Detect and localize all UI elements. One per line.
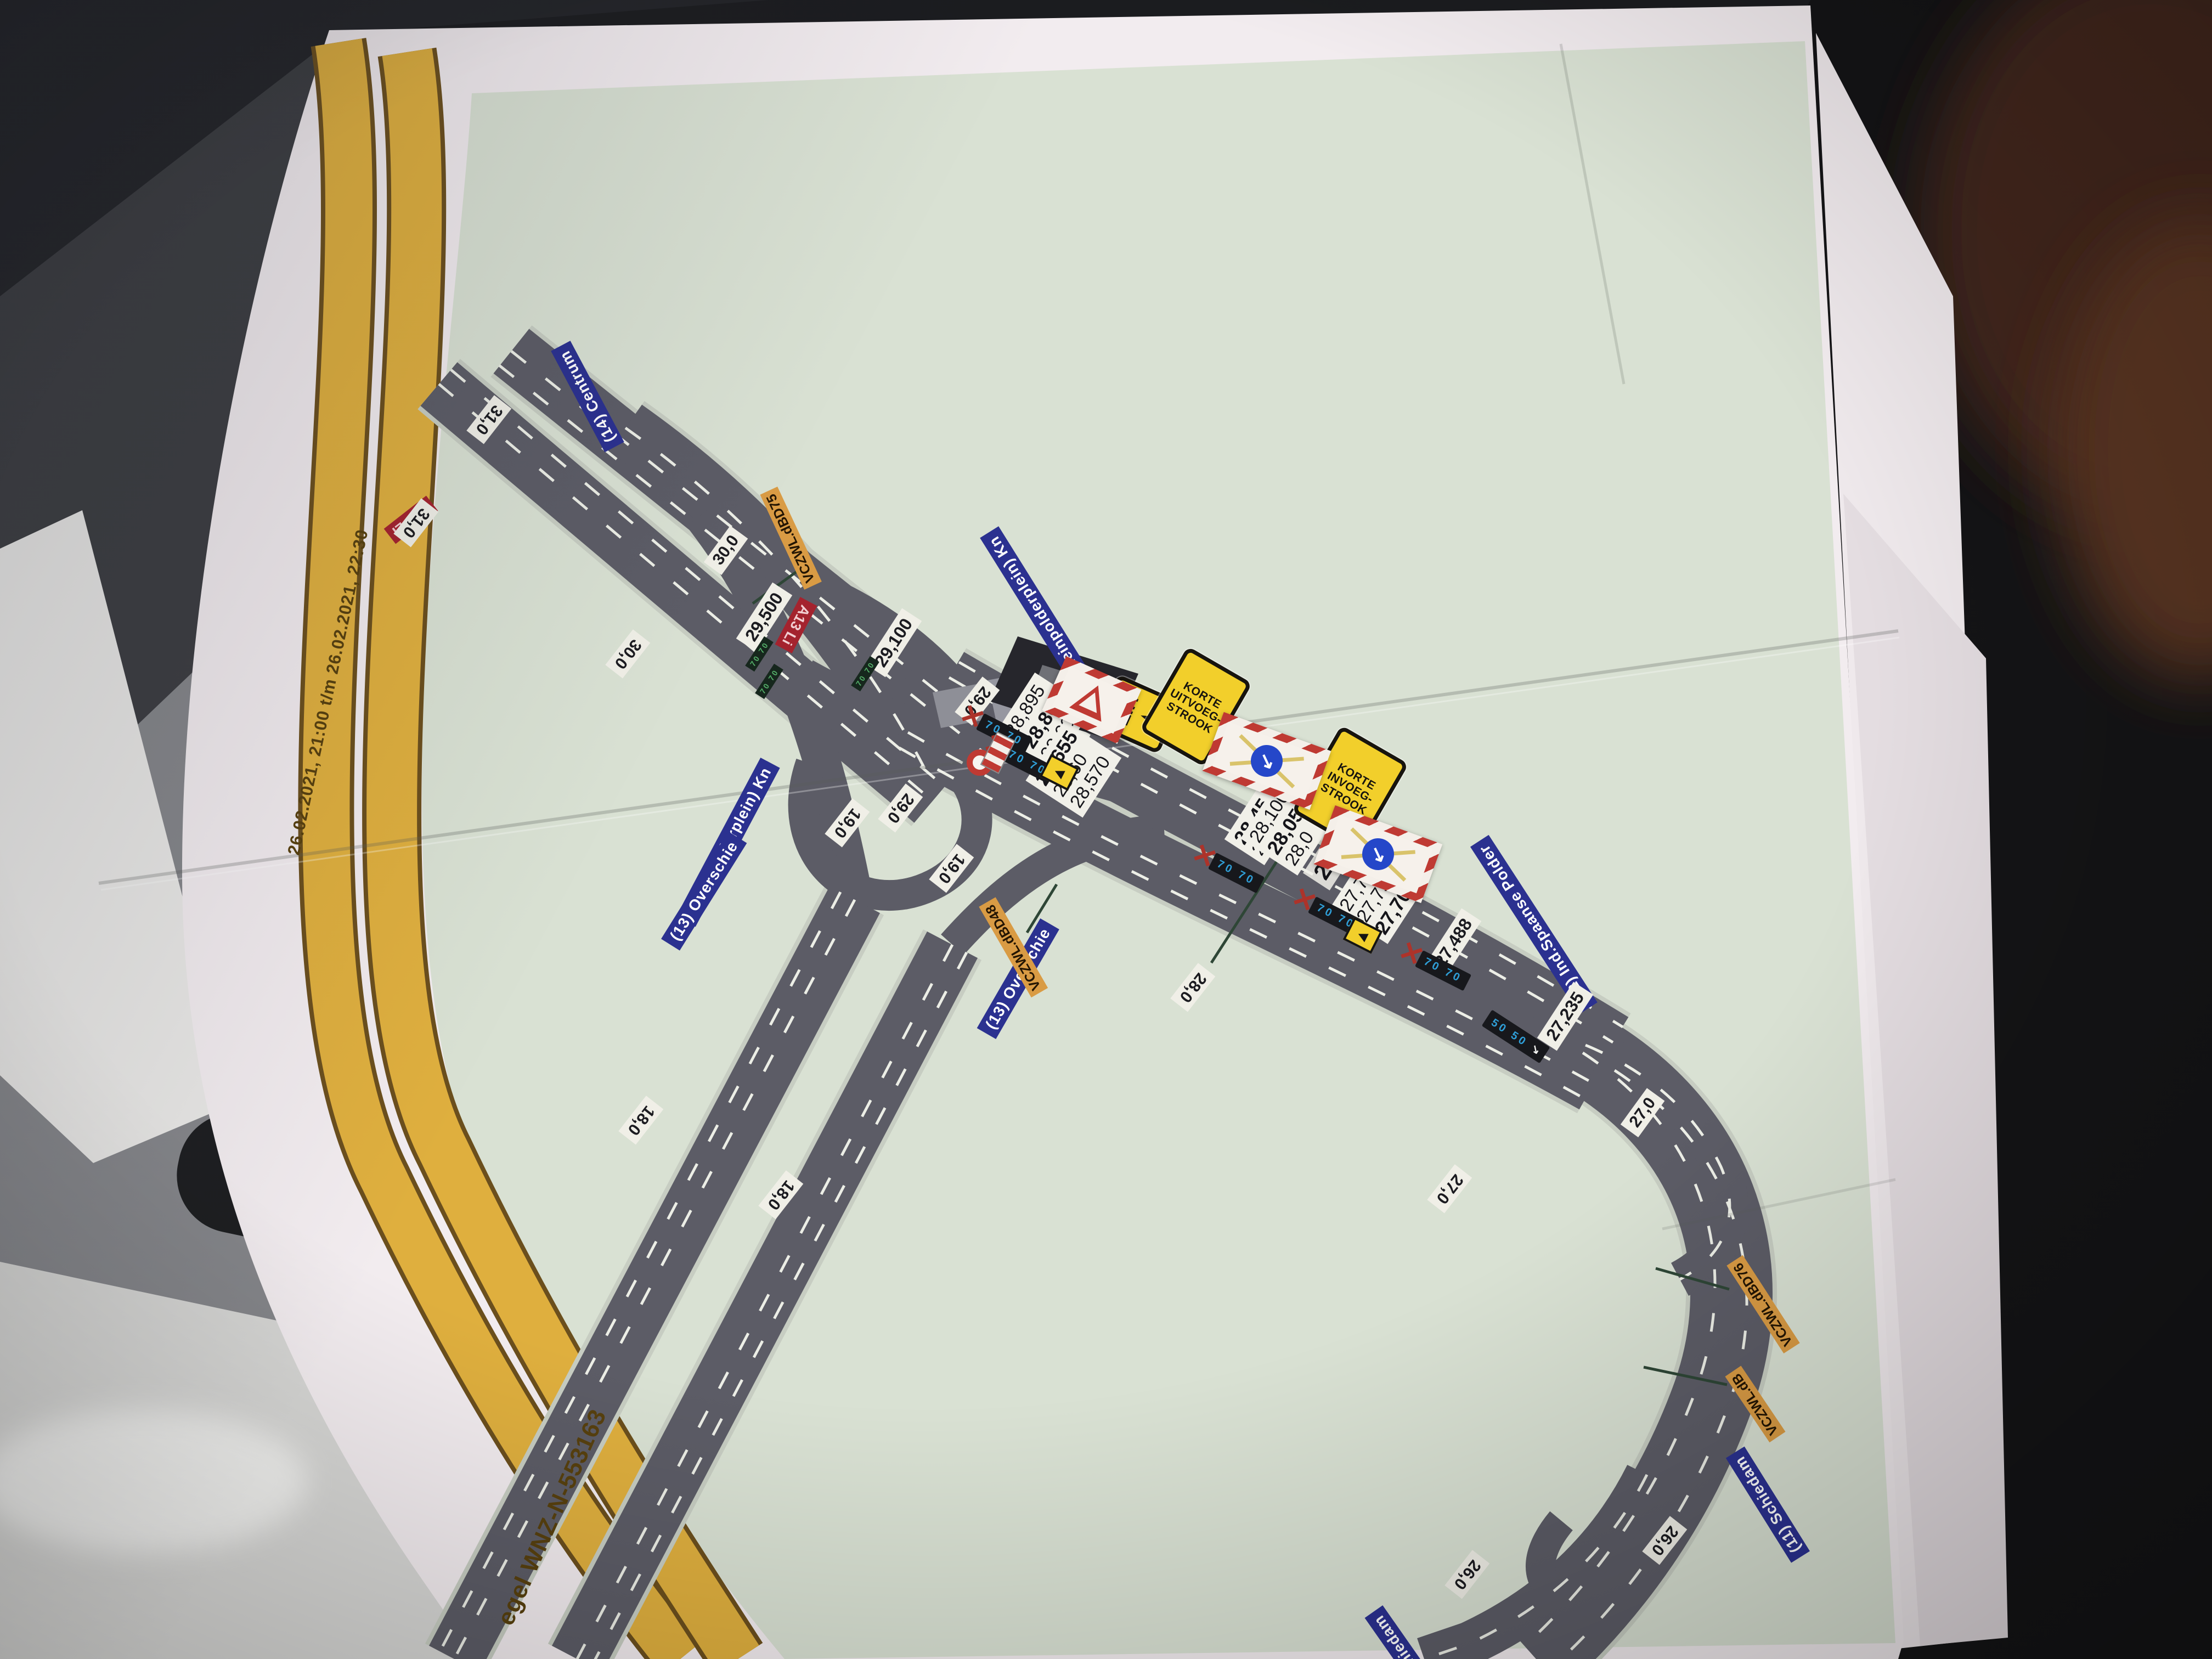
trailer-arrow-icon: ◀ [1052,764,1067,781]
trailer-arrow-icon: ◀ [1356,927,1370,944]
lane-arrow-icon: ↘ [1528,1042,1543,1057]
photo-of-roadworks-map: 26.02.2021, 21:00 t/m 26.02.2021, 22:30 … [0,0,2212,1659]
keep-right-arrow-icon: ↘ [1367,840,1390,868]
keep-right-arrow-icon: ↘ [1255,747,1279,775]
map-graphic [0,0,2212,1659]
warning-triangle-icon [1069,678,1114,721]
